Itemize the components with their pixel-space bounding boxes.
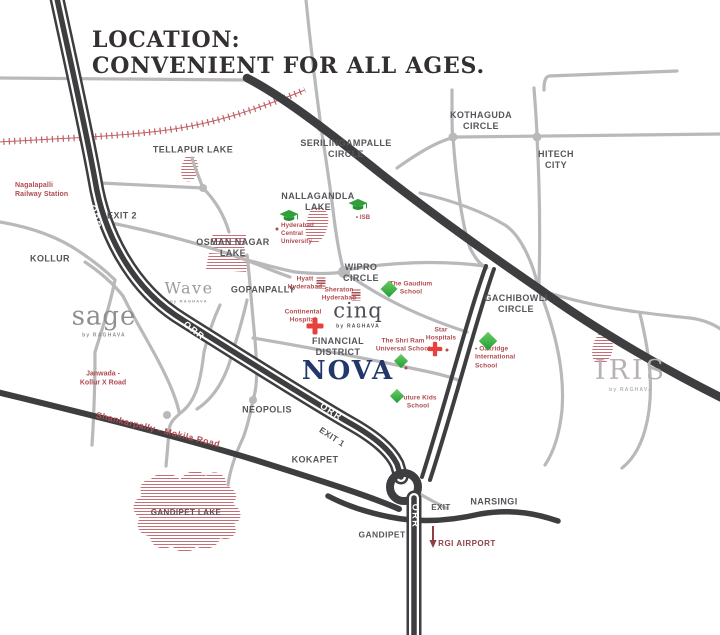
hospital-cross-icon-continental (307, 318, 324, 335)
railway-line (0, 90, 305, 142)
oakridge-school-label: • Oakridge International School (475, 345, 515, 370)
title-line1: LOCATION: (92, 28, 485, 54)
exit-2-label: EXIT 2 (107, 210, 137, 221)
graduation-cap-icon-hcu (280, 210, 299, 229)
place-narsingi: NARSINGI (470, 496, 517, 507)
iris-logo: IRIS by RAGHAVA (595, 355, 667, 393)
airport-arrow-icon (429, 526, 436, 548)
orr-label-south: ORR (409, 504, 420, 529)
exit-label: EXIT (431, 503, 450, 513)
wave-logo: Wave by RAGHAVA (164, 279, 213, 304)
place-kothaguda-circle: KOTHAGUDA CIRCLE (450, 110, 512, 133)
place-serilingampalle-circle: SERILINGAMPALLE CIRCLE (300, 138, 391, 161)
cinq-logo-name: cinq (333, 299, 382, 323)
poi-dot-shri-ram (405, 367, 408, 370)
sage-logo: sage by RAGHAVA (72, 302, 137, 339)
cinq-logo-by: by RAGHAVA (333, 324, 382, 330)
poi-dot-star (446, 349, 449, 352)
hotel-building-icon-sheraton (352, 290, 361, 301)
sage-logo-name: sage (72, 302, 137, 332)
title-line2: CONVENIENT FOR ALL AGES. (92, 54, 485, 80)
rgi-airport-label: RGI AIRPORT (438, 539, 496, 549)
hospital-cross-icon-star (428, 342, 442, 356)
sage-logo-by: by RAGHAVA (72, 333, 137, 339)
cinq-logo: cinq by RAGHAVA (333, 299, 382, 330)
page-title: LOCATION: CONVENIENT FOR ALL AGES. (92, 28, 485, 80)
shri-ram-school-label: The Shri Ram Universal School (376, 338, 430, 355)
place-kokapet: KOKAPET (292, 454, 339, 465)
iris-logo-by: by RAGHAVA (595, 387, 667, 393)
future-kids-school-label: Future Kids School (399, 395, 436, 412)
nova-logo-name: NOVA (302, 356, 394, 386)
place-gandipet-lake: GANDIPET LAKE (151, 508, 222, 518)
poi-dot-hcu (276, 228, 279, 231)
iris-logo-name: IRIS (595, 355, 667, 386)
place-financial-district: FINANCIAL DISTRICT (312, 336, 364, 359)
hotel-building-icon-hyatt (317, 278, 326, 289)
nova-logo: NOVA (302, 356, 394, 386)
place-gopanpally: GOPANPALLY (231, 284, 295, 295)
place-osman-nagar-lake: OSMAN NAGAR LAKE (196, 237, 269, 260)
wave-logo-by: by RAGHAVA (164, 299, 213, 304)
graduation-cap-icon-isb (349, 199, 368, 218)
location-map: LOCATION: CONVENIENT FOR ALL AGES. ORR O… (0, 0, 720, 635)
place-hitech-city: HITECH CITY (538, 149, 574, 172)
place-wipro-circle: WIPRO CIRCLE (343, 262, 379, 285)
wave-logo-name: Wave (164, 279, 213, 298)
place-gachibowli-circle: GACHIBOWLI CIRCLE (485, 293, 548, 316)
place-kollur: KOLLUR (30, 253, 70, 264)
place-gandipet: GANDIPET (358, 530, 405, 541)
nagalapalli-railway-station-label: Nagalapalli Railway Station (15, 181, 68, 199)
place-neopolis: NEOPOLIS (242, 404, 292, 415)
place-tellapur-lake: TELLAPUR LAKE (153, 144, 233, 155)
janwada-kollur-road-label: Janwada - Kollur X Road (80, 370, 126, 388)
